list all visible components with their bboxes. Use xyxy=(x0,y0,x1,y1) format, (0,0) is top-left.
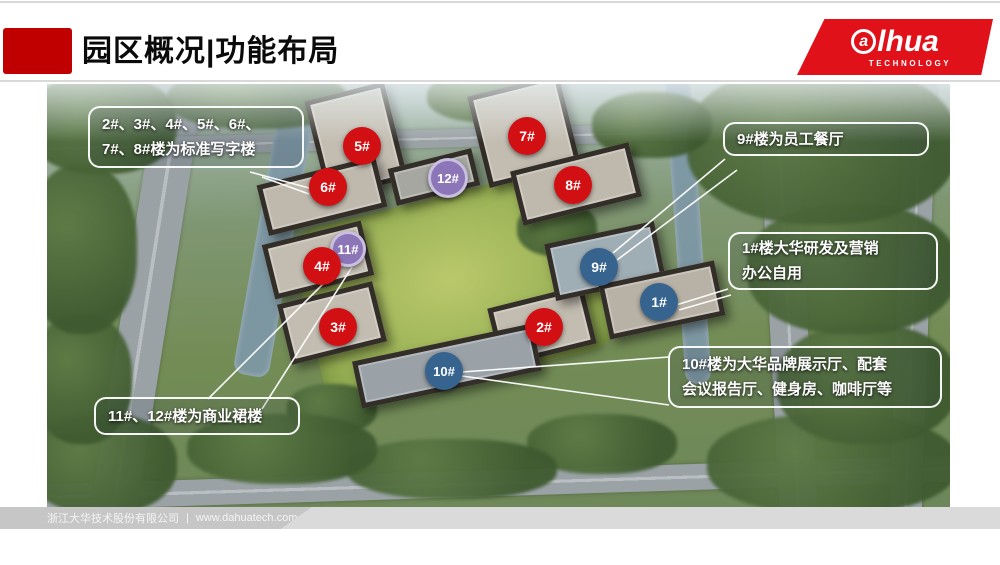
building-marker-5: 5# xyxy=(343,127,381,165)
footer-company-tab: 浙江大华技术股份有限公司 | www.dahuatech.com xyxy=(0,507,312,529)
callout-text: 11#、12#楼为商业裙楼 xyxy=(108,404,286,429)
building-marker-4: 4# xyxy=(303,247,341,285)
callout-showroom: 10#楼为大华品牌展示厅、配套会议报告厅、健身房、咖啡厅等 xyxy=(668,346,942,408)
footer-website: www.dahuatech.com xyxy=(196,512,298,524)
building-marker-9: 9# xyxy=(580,248,618,286)
dahua-logo-text: lhua xyxy=(877,27,939,57)
callout-commercial-podium: 11#、12#楼为商业裙楼 xyxy=(94,397,300,435)
title-accent-block xyxy=(3,28,72,74)
building-marker-10: 10# xyxy=(425,352,463,390)
page-title: 园区概况|功能布局 xyxy=(82,28,339,76)
callout-text: 2#、3#、4#、5#、6#、 xyxy=(102,112,290,137)
callout-canteen: 9#楼为员工餐厅 xyxy=(723,122,929,156)
callout-text: 7#、8#楼为标准写字楼 xyxy=(102,137,290,162)
callout-text: 办公自用 xyxy=(742,261,924,286)
callout-text: 会议报告厅、健身房、咖啡厅等 xyxy=(682,377,928,402)
building-marker-3: 3# xyxy=(319,308,357,346)
building-marker-12: 12# xyxy=(428,158,468,198)
footer-company-name: 浙江大华技术股份有限公司 xyxy=(47,510,179,526)
top-divider xyxy=(0,1,1000,3)
header-divider xyxy=(0,80,1000,82)
dahua-logo-circle-a-icon: a xyxy=(851,29,876,54)
dahua-logo-wordmark: a lhua xyxy=(851,27,939,57)
callout-text: 10#楼为大华品牌展示厅、配套 xyxy=(682,352,928,377)
building-marker-1: 1# xyxy=(640,283,678,321)
footer-bar: 浙江大华技术股份有限公司 | www.dahuatech.com xyxy=(0,507,1000,529)
slide: 园区概况|功能布局 a lhua TECHNOLOGY 5#7#6#12#8#1… xyxy=(0,0,1000,565)
callout-hq-office: 1#楼大华研发及营销办公自用 xyxy=(728,232,938,290)
building-marker-8: 8# xyxy=(554,166,592,204)
footer-separator: | xyxy=(186,512,189,524)
building-marker-6: 6# xyxy=(309,168,347,206)
building-marker-7: 7# xyxy=(508,117,546,155)
callout-text: 1#楼大华研发及营销 xyxy=(742,236,924,261)
callout-text: 9#楼为员工餐厅 xyxy=(737,127,915,152)
dahua-logo: a lhua TECHNOLOGY xyxy=(797,19,993,75)
building-marker-2: 2# xyxy=(525,308,563,346)
callout-standard-offices: 2#、3#、4#、5#、6#、7#、8#楼为标准写字楼 xyxy=(88,106,304,168)
campus-aerial-image: 5#7#6#12#8#11#4#9#1#3#2#10#2#、3#、4#、5#、6… xyxy=(47,84,950,508)
dahua-logo-subtext: TECHNOLOGY xyxy=(869,59,951,68)
